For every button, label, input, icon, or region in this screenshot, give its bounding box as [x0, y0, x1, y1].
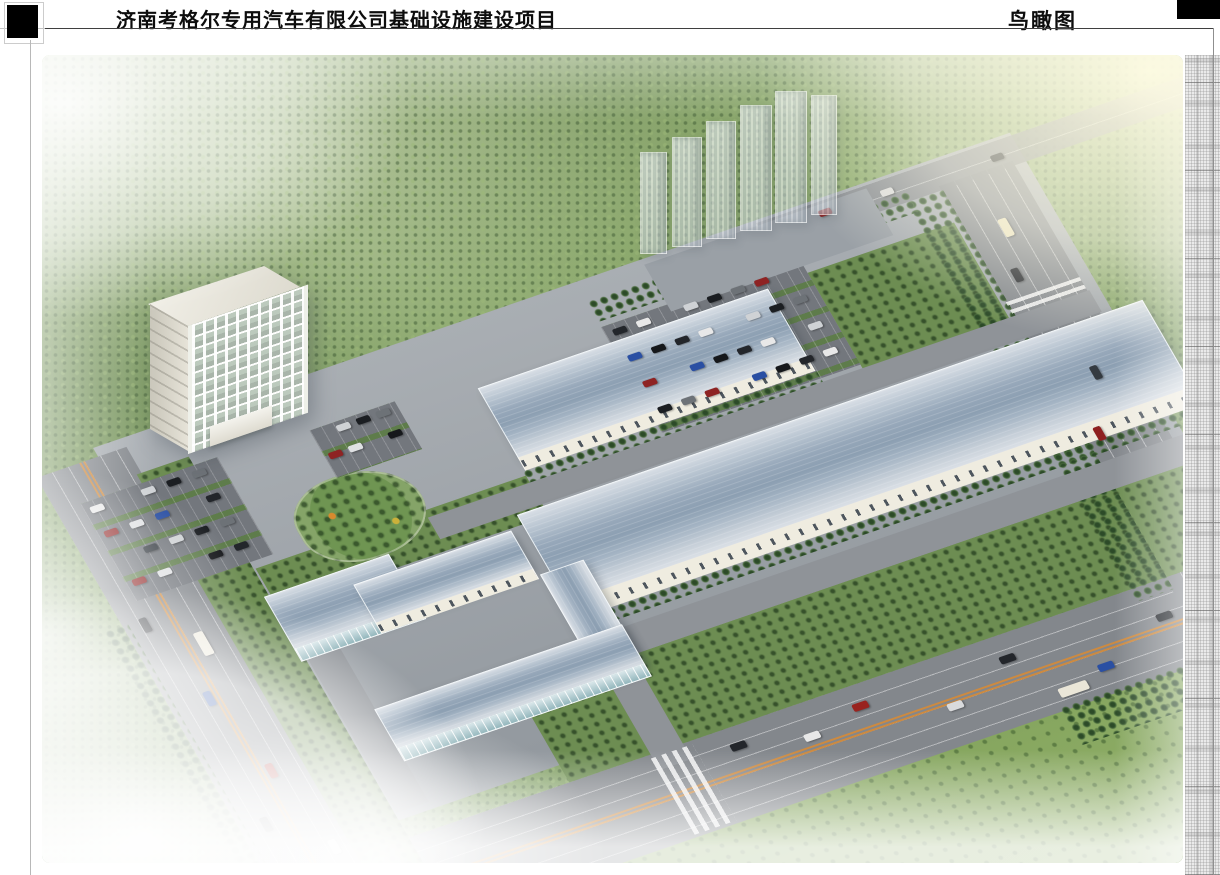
car — [879, 187, 895, 197]
bus — [192, 631, 214, 657]
parked-car — [156, 567, 173, 578]
parked-car — [627, 351, 644, 362]
parked-car — [753, 277, 770, 288]
parked-car — [657, 403, 674, 414]
parked-car — [635, 317, 652, 328]
car — [264, 762, 280, 778]
parked-car — [682, 301, 699, 312]
parked-car — [154, 510, 171, 521]
parked-car — [191, 468, 208, 479]
parked-car — [327, 449, 344, 460]
parked-car — [205, 492, 222, 503]
office-tower — [148, 266, 310, 462]
drawing-sheet: 济南考格尔专用汽车有限公司基础设施建设项目 鸟瞰图 — [0, 0, 1220, 875]
parked-car — [822, 346, 839, 357]
parked-car — [89, 503, 106, 514]
parked-car — [680, 395, 697, 406]
parked-car — [689, 361, 706, 372]
parked-car — [706, 293, 723, 304]
car — [1092, 426, 1107, 442]
parked-car — [730, 285, 747, 296]
parked-car — [335, 421, 352, 432]
car — [202, 690, 218, 706]
right-margin-line — [1213, 28, 1214, 875]
parked-car — [142, 543, 159, 554]
parked-car — [751, 371, 768, 382]
title-underline — [45, 28, 1213, 29]
parked-car — [347, 442, 364, 453]
left-margin-line — [30, 40, 31, 875]
parked-car — [798, 355, 815, 366]
parked-car — [387, 429, 404, 440]
parked-car — [768, 303, 785, 314]
car — [817, 207, 833, 217]
car — [1010, 267, 1025, 283]
aerial-rendering — [42, 55, 1183, 863]
parked-car — [168, 534, 185, 545]
parked-car — [792, 294, 809, 305]
parked-car — [704, 387, 721, 398]
parked-car — [233, 541, 250, 552]
parked-car — [103, 527, 120, 538]
registration-mark-top-right — [1177, 0, 1220, 19]
office-tower-side — [150, 304, 188, 451]
parked-car — [355, 415, 372, 426]
car — [138, 617, 154, 633]
parked-car — [736, 345, 753, 356]
registration-mark-top-left — [7, 5, 38, 38]
parked-car — [745, 311, 762, 322]
parked-car — [807, 320, 824, 331]
car — [729, 740, 748, 752]
parked-car — [140, 485, 157, 496]
parked-car — [674, 335, 691, 346]
parked-car — [208, 549, 225, 560]
parked-car — [131, 576, 148, 587]
parked-car — [775, 363, 792, 374]
parked-car — [612, 325, 629, 336]
car — [989, 152, 1005, 162]
car — [258, 816, 274, 832]
car — [946, 700, 965, 712]
parked-car — [712, 353, 729, 364]
parked-car — [194, 525, 211, 536]
parked-car — [650, 343, 667, 354]
car — [1155, 610, 1174, 622]
car — [1089, 365, 1104, 381]
parked-car — [219, 516, 236, 527]
parked-car — [166, 477, 183, 488]
parked-car — [642, 377, 659, 388]
car — [851, 700, 870, 712]
car — [327, 838, 343, 854]
parked-car — [375, 408, 392, 419]
car — [998, 653, 1017, 665]
bus — [1057, 680, 1090, 698]
bus — [997, 217, 1016, 237]
parked-car — [128, 518, 145, 529]
view-type-label: 鸟瞰图 — [1008, 5, 1077, 35]
car — [1096, 660, 1115, 672]
parked-car — [697, 327, 714, 338]
parked-car — [760, 337, 777, 348]
car — [803, 730, 822, 742]
sheet-edge-texture — [1185, 55, 1220, 875]
